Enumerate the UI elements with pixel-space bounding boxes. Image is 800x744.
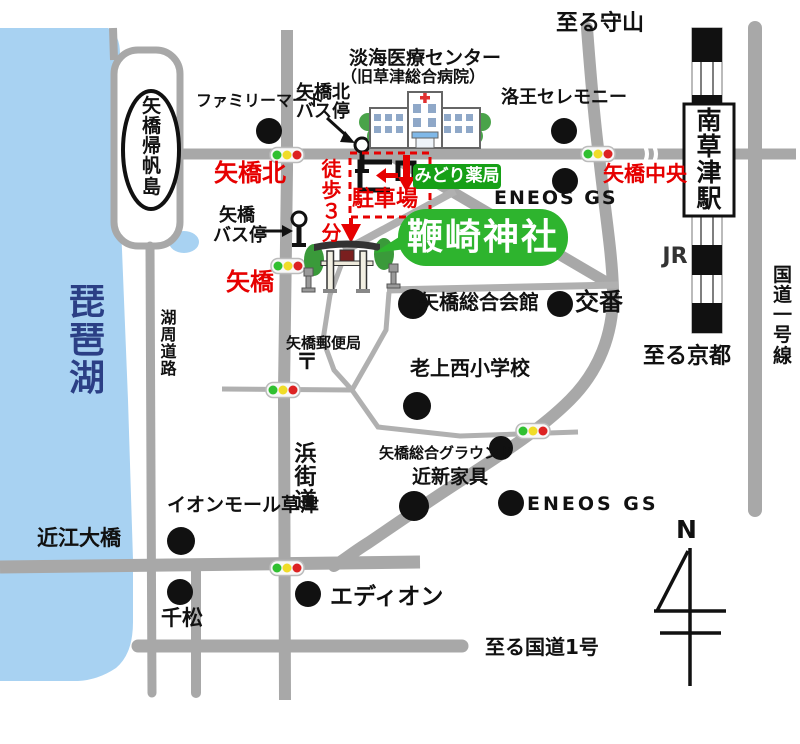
hospital-name-label: 淡海医療センター bbox=[349, 48, 501, 69]
intersection-yabase-north-label: 矢橋北 bbox=[214, 160, 286, 186]
pharmacy-label-text: みどり薬局 bbox=[415, 167, 500, 186]
traffic-light-icon bbox=[266, 383, 300, 398]
kaikan-label: 矢橋総合会館 bbox=[419, 291, 539, 313]
post-mark-label: 〒 bbox=[296, 351, 318, 375]
eneos-north-label: ENEOS GS bbox=[494, 188, 618, 209]
traffic-light-icon bbox=[516, 424, 550, 439]
aeon-dot bbox=[167, 527, 195, 555]
to-moriyama-label: 至る守山 bbox=[556, 12, 644, 36]
hospital-icon bbox=[359, 92, 491, 148]
route1-vertical-label: 国道一号線 bbox=[772, 265, 793, 366]
shrine-name-text: 鞭崎神社 bbox=[407, 218, 559, 258]
intersection-yabase-label: 矢橋 bbox=[226, 269, 274, 295]
pharmacy-label: みどり薬局 bbox=[413, 164, 501, 189]
edion-label: エディオン bbox=[330, 585, 443, 610]
island-label: 矢橋帰帆島 bbox=[140, 96, 163, 197]
bus-stop-pole-icon bbox=[292, 212, 306, 247]
busstop-yabase-label-1: 矢橋 bbox=[219, 206, 255, 226]
lakeside-road-label: 湖周道路 bbox=[159, 310, 178, 378]
shrine-name-label: 鞭崎神社 bbox=[398, 209, 568, 266]
jr-label: JR bbox=[662, 245, 688, 268]
rakuo-label: 洛王セレモニー bbox=[501, 88, 627, 108]
lakeside-road bbox=[150, 246, 152, 693]
ground-label: 矢橋総合グラウンド bbox=[379, 445, 514, 462]
eneos-south-label: ENEOS GS bbox=[527, 494, 659, 515]
school-label: 老上西小学校 bbox=[410, 357, 530, 379]
kagu-label: 近新家具 bbox=[412, 467, 488, 488]
walk-time-label: 徒歩３分 bbox=[320, 159, 343, 244]
aeon-label: イオンモール草津 bbox=[167, 495, 319, 516]
ohashi-road bbox=[0, 562, 420, 567]
rakuo-dot bbox=[551, 118, 577, 144]
hospital-former-label: （旧草津総合病院） bbox=[341, 68, 485, 86]
edion-dot bbox=[295, 581, 321, 607]
ohashi-label: 近江大橋 bbox=[37, 527, 121, 550]
busstop-yabase-label-2: バス停 bbox=[213, 226, 267, 246]
island-spur-road bbox=[113, 28, 114, 60]
busstop-north-label-1: 矢橋北 bbox=[296, 83, 350, 103]
north-arrow-icon bbox=[654, 548, 726, 686]
to-route1-label: 至る国道1号 bbox=[485, 636, 599, 658]
senmatsu-label: 千松 bbox=[161, 607, 203, 630]
kagu-dot bbox=[399, 491, 429, 521]
busstop-north-label-2: バス停 bbox=[296, 102, 350, 122]
senmatsu-dot bbox=[167, 579, 193, 605]
familymart-dot bbox=[256, 118, 282, 144]
koban-label: 交番 bbox=[575, 289, 623, 315]
eneos-south-dot bbox=[498, 490, 524, 516]
traffic-light-icon bbox=[581, 147, 615, 162]
lake-biwa-label: 琵琶湖 bbox=[66, 284, 108, 398]
traffic-light-icon bbox=[271, 259, 305, 274]
traffic-light-icon bbox=[270, 561, 304, 576]
intersection-yabase-central-label: 矢橋中央 bbox=[603, 163, 687, 186]
map-graphics bbox=[0, 0, 800, 744]
station-name-label: 南草津駅 bbox=[692, 108, 726, 212]
school-dot bbox=[403, 392, 431, 420]
access-map: 至る守山 淡海医療センター （旧草津総合病院） ファミリーマート 矢橋北 バス停… bbox=[0, 0, 800, 744]
north-label: N bbox=[676, 516, 697, 544]
koban-dot bbox=[547, 291, 573, 317]
hama-kaido-road bbox=[284, 30, 287, 700]
to-kyoto-label: 至る京都 bbox=[643, 345, 731, 369]
